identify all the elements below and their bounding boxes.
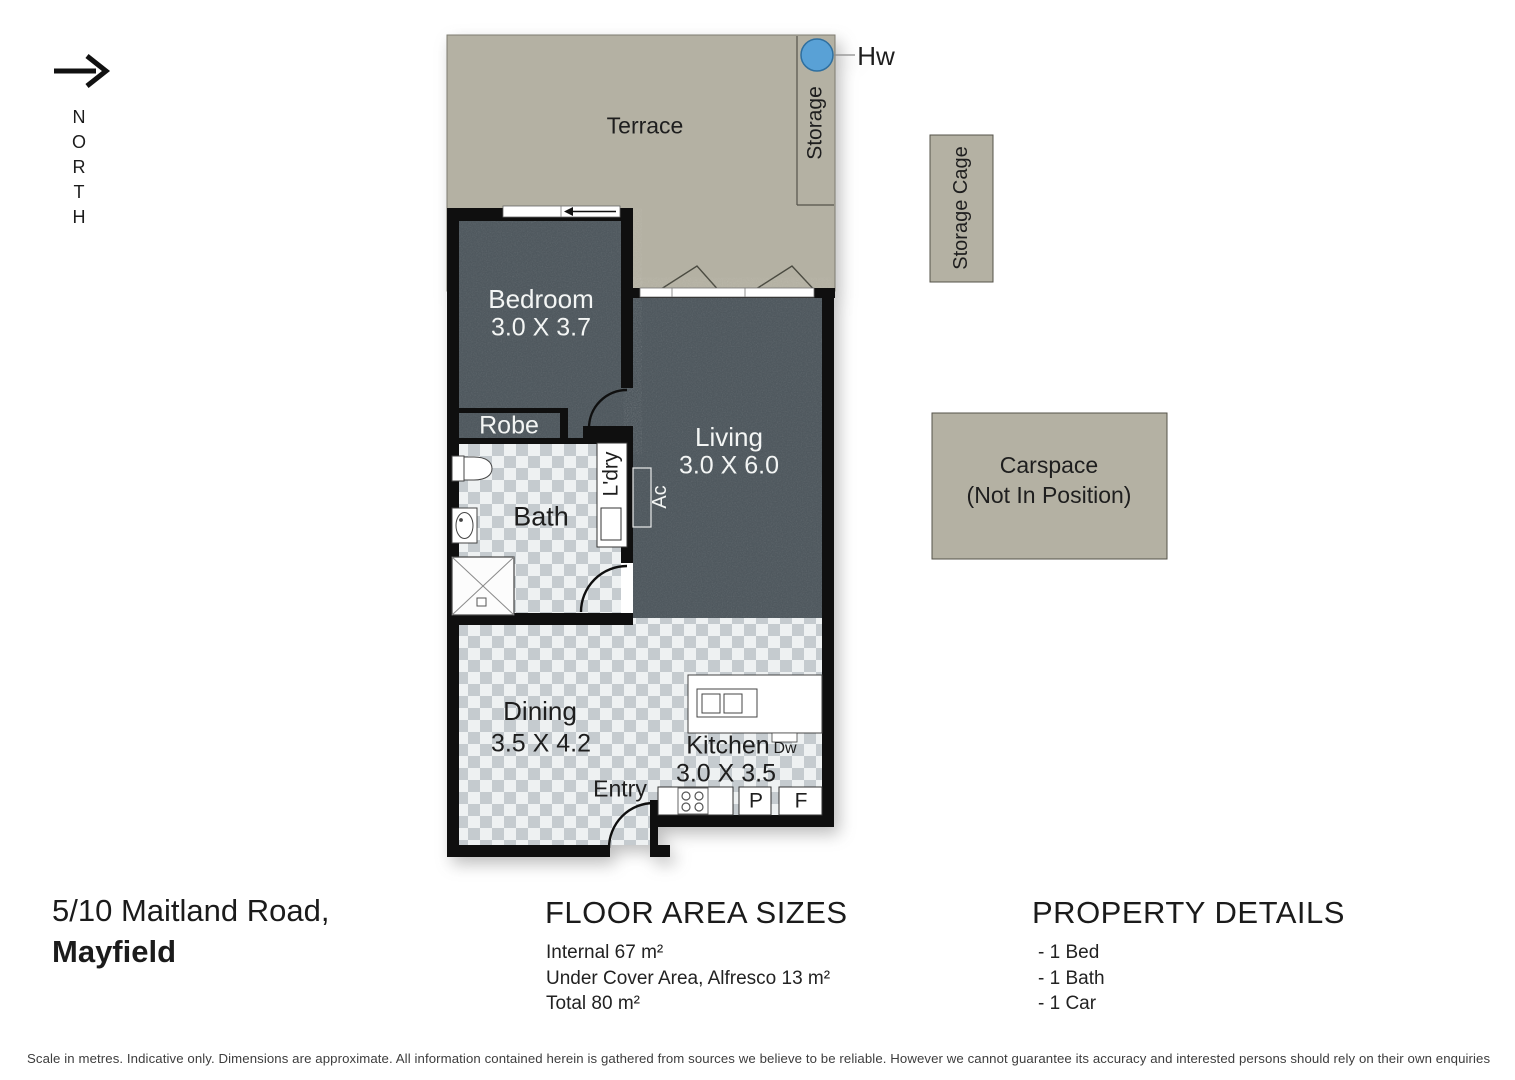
storage-label: Storage xyxy=(805,86,826,160)
cooktop-icon xyxy=(678,788,708,814)
property-details-items: - 1 Bed - 1 Bath - 1 Car xyxy=(1038,940,1105,1017)
floor-area-undercover: Under Cover Area, Alfresco 13 m² xyxy=(546,966,830,992)
disclaimer-text: Scale in metres. Indicative only. Dimens… xyxy=(27,1051,1502,1066)
robe-label: Robe xyxy=(479,414,539,439)
north-letter: H xyxy=(73,208,86,226)
carspace-line2: (Not In Position) xyxy=(967,480,1132,510)
kitchen-island xyxy=(688,675,822,733)
floor-area-title: FLOOR AREA SIZES xyxy=(545,895,848,931)
laundry-label: L'dry xyxy=(601,452,622,497)
floorplan-page: N O R T H Terrace Storage Hw Storage Cag… xyxy=(0,0,1515,1080)
living-label: Living xyxy=(695,424,763,450)
address-line1: 5/10 Maitland Road, xyxy=(52,890,329,931)
dining-label: Dining xyxy=(503,698,577,724)
carspace-label: Carspace (Not In Position) xyxy=(967,450,1132,510)
kitchen-dims: 3.0 X 3.5 xyxy=(676,762,776,787)
floor-area-lines: Internal 67 m² Under Cover Area, Alfresc… xyxy=(546,940,830,1017)
bifold-sill xyxy=(640,288,814,297)
pantry-label: P xyxy=(749,791,763,812)
north-letter: T xyxy=(74,183,85,201)
floor-area-total: Total 80 m² xyxy=(546,991,830,1017)
property-details-title: PROPERTY DETAILS xyxy=(1032,895,1345,931)
fridge-label: F xyxy=(795,791,808,812)
entry-label: Entry xyxy=(593,778,647,801)
carspace-line1: Carspace xyxy=(967,450,1132,480)
storage-cage-label: Storage Cage xyxy=(951,146,971,269)
north-letter: R xyxy=(73,158,86,176)
toilet-icon xyxy=(452,456,492,481)
bedroom-label: Bedroom xyxy=(488,286,594,312)
north-letter: O xyxy=(72,133,86,151)
floor-area-internal: Internal 67 m² xyxy=(546,940,830,966)
bath-label: Bath xyxy=(513,504,569,531)
address-line2: Mayfield xyxy=(52,931,329,972)
dishwasher-label: Dw xyxy=(773,741,796,757)
hw-unit-icon xyxy=(801,39,833,71)
hw-label: Hw xyxy=(857,43,895,69)
property-item-bed: - 1 Bed xyxy=(1038,940,1105,966)
north-letter: N xyxy=(73,108,86,126)
bedroom-window-icon xyxy=(503,206,620,217)
property-item-bath: - 1 Bath xyxy=(1038,966,1105,992)
ac-label: Ac xyxy=(650,485,670,508)
property-item-car: - 1 Car xyxy=(1038,991,1105,1017)
kitchen-label: Kitchen xyxy=(686,734,769,759)
north-arrow-icon xyxy=(54,56,106,86)
basin-icon xyxy=(452,508,477,543)
address: 5/10 Maitland Road, Mayfield xyxy=(52,890,329,972)
shower-icon xyxy=(452,557,514,615)
bedroom-dims: 3.0 X 3.7 xyxy=(491,316,591,341)
living-dims: 3.0 X 6.0 xyxy=(679,454,779,479)
bath-door-opening xyxy=(621,563,633,613)
washer-icon xyxy=(601,508,621,540)
dining-floor-south xyxy=(459,815,658,845)
terrace-label: Terrace xyxy=(607,115,684,138)
dining-dims: 3.5 X 4.2 xyxy=(491,732,591,757)
